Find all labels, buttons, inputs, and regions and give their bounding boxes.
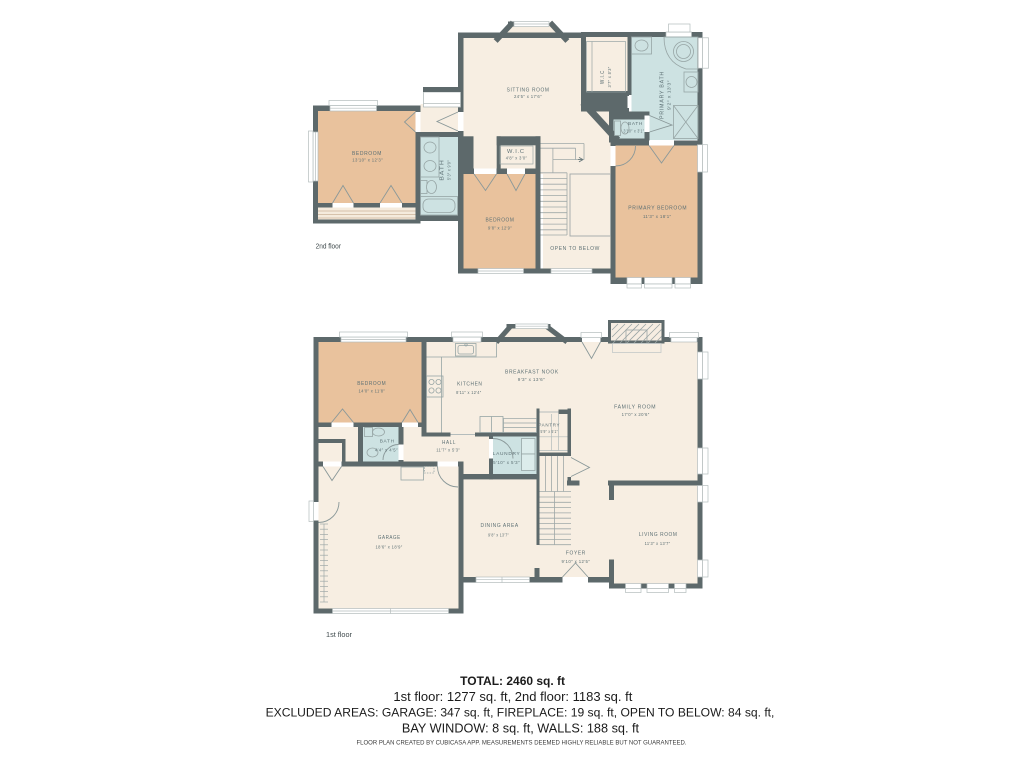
svg-text:W.I.C: W.I.C	[507, 149, 525, 155]
svg-text:9′3″ x 13′6″: 9′3″ x 13′6″	[518, 377, 545, 383]
svg-text:8′11″ x 12′4″: 8′11″ x 12′4″	[456, 390, 481, 396]
svg-text:3′7″ x 8′3″: 3′7″ x 8′3″	[607, 66, 612, 87]
svg-text:TOTAL: 2460 sq. ft: TOTAL: 2460 sq. ft	[460, 674, 565, 688]
svg-text:4′4″ x 4′5″: 4′4″ x 4′5″	[375, 448, 398, 453]
svg-text:18′6″ x 18′9″: 18′6″ x 18′9″	[376, 544, 403, 550]
svg-text:11′7″ x 5′3″: 11′7″ x 5′3″	[436, 448, 460, 453]
svg-text:FOYER: FOYER	[566, 551, 586, 557]
svg-text:PRIMARY BATH: PRIMARY BATH	[660, 71, 666, 119]
svg-text:4′8″ x 3′0″: 4′8″ x 3′0″	[506, 156, 528, 161]
svg-text:EXCLUDED AREAS: GARAGE: 347 sq: EXCLUDED AREAS: GARAGE: 347 sq. ft, FIRE…	[266, 706, 775, 720]
svg-text:13′10″ x 12′3″: 13′10″ x 12′3″	[352, 158, 383, 164]
svg-text:LAUNDRY: LAUNDRY	[493, 451, 521, 457]
svg-text:11′3″ x 18′1″: 11′3″ x 18′1″	[643, 214, 672, 220]
svg-text:HALL: HALL	[442, 440, 456, 446]
svg-text:2nd floor: 2nd floor	[316, 243, 342, 250]
svg-text:1st floor: 1st floor	[326, 632, 353, 639]
svg-text:PRIMARY BEDROOM: PRIMARY BEDROOM	[628, 206, 687, 212]
svg-text:BEDROOM: BEDROOM	[486, 218, 515, 224]
svg-text:KITCHEN: KITCHEN	[457, 382, 482, 388]
svg-text:BEDROOM: BEDROOM	[352, 151, 382, 157]
svg-text:17′0″ x 20′6″: 17′0″ x 20′6″	[622, 412, 650, 418]
svg-text:PANTRY: PANTRY	[538, 423, 560, 429]
svg-text:FAMILY ROOM: FAMILY ROOM	[614, 405, 656, 411]
svg-text:14′0″ x 11′8″: 14′0″ x 11′8″	[358, 389, 385, 395]
svg-text:DINING AREA: DINING AREA	[480, 523, 518, 529]
svg-text:GARAGE: GARAGE	[378, 535, 401, 541]
svg-text:5′10″ x 5′3″: 5′10″ x 5′3″	[493, 460, 520, 465]
svg-text:FLOOR PLAN CREATED BY CUBICASA: FLOOR PLAN CREATED BY CUBICASA APP. MEAS…	[357, 741, 687, 747]
svg-text:W.I.C: W.I.C	[600, 70, 606, 84]
svg-text:9′8″ x 13′7″: 9′8″ x 13′7″	[488, 533, 509, 539]
svg-text:BREAKFAST NOOK: BREAKFAST NOOK	[505, 369, 559, 375]
svg-text:24′5″ x 17′6″: 24′5″ x 17′6″	[514, 94, 542, 100]
svg-text:3′10″ x 3′1″: 3′10″ x 3′1″	[624, 129, 645, 134]
svg-text:9′10″ x 12′5″: 9′10″ x 12′5″	[562, 559, 591, 564]
svg-text:9′8″ x 12′9″: 9′8″ x 12′9″	[488, 225, 512, 231]
svg-text:OPEN TO BELOW: OPEN TO BELOW	[550, 246, 600, 252]
svg-text:LIVING ROOM: LIVING ROOM	[639, 532, 678, 538]
svg-text:5′3″ x 9′9″: 5′3″ x 9′9″	[447, 160, 452, 180]
svg-text:BATH: BATH	[440, 159, 446, 181]
svg-text:5′9″ x 5′1″: 5′9″ x 5′1″	[540, 429, 558, 434]
svg-text:SITTING ROOM: SITTING ROOM	[507, 87, 550, 93]
svg-text:11′3″ x 13′7″: 11′3″ x 13′7″	[645, 541, 671, 547]
svg-text:BAY WINDOW: 8 sq. ft, WALLS: 1: BAY WINDOW: 8 sq. ft, WALLS: 188 sq. ft	[402, 722, 640, 736]
svg-text:BEDROOM: BEDROOM	[357, 381, 386, 387]
svg-text:9′2″ x 13′3″: 9′2″ x 13′3″	[667, 80, 672, 110]
svg-text:1st floor: 1277 sq. ft, 2nd fl: 1st floor: 1277 sq. ft, 2nd floor: 1183 …	[393, 689, 632, 704]
svg-text:BATH: BATH	[628, 121, 643, 126]
svg-text:BATH: BATH	[380, 438, 395, 444]
